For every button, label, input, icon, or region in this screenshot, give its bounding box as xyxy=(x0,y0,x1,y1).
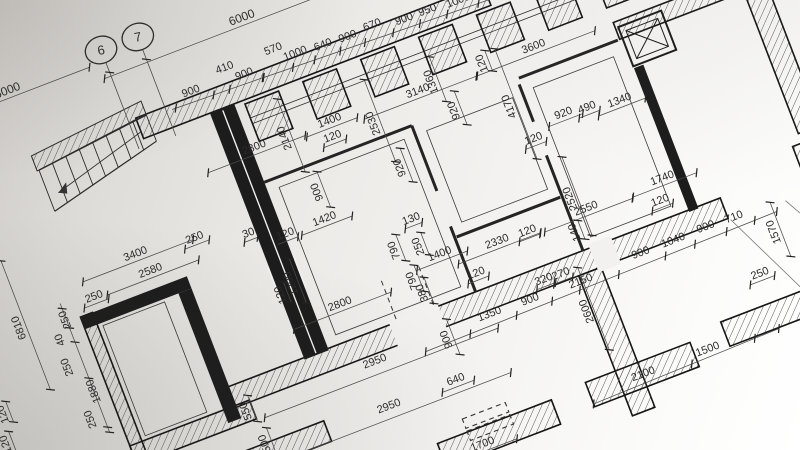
svg-text:2580: 2580 xyxy=(137,261,164,281)
dimension-label: 250 xyxy=(56,309,74,330)
svg-text:570: 570 xyxy=(262,40,283,58)
svg-text:120: 120 xyxy=(473,53,491,74)
dimension-label: 250 xyxy=(59,356,77,377)
dimension-label: 2950 xyxy=(375,396,402,416)
svg-text:250: 250 xyxy=(184,229,205,247)
svg-text:4170: 4170 xyxy=(499,93,519,120)
grid-bubble-label: 7 xyxy=(133,29,143,45)
svg-text:250: 250 xyxy=(83,288,104,306)
dimension-label: 900 xyxy=(304,168,335,213)
dimension-label: 250 xyxy=(178,227,212,254)
svg-text:250: 250 xyxy=(749,265,770,283)
svg-text:250: 250 xyxy=(82,408,100,429)
dimension-label: 120 xyxy=(646,190,676,215)
svg-text:490: 490 xyxy=(576,99,597,117)
svg-text:710: 710 xyxy=(723,208,744,226)
dimension-label: 640 xyxy=(436,367,478,397)
grid-bubble: 7 xyxy=(118,19,158,56)
dimension-label: 920 xyxy=(441,88,471,132)
dimension-label: 4170 xyxy=(482,45,542,165)
grid-bubble: 6 xyxy=(81,32,121,69)
dimension-label: 410 xyxy=(214,59,235,77)
dimension-label: 1500 xyxy=(694,339,721,359)
dimension-label: 250 xyxy=(82,408,100,429)
dimension-label: 120 xyxy=(519,129,549,154)
svg-text:920: 920 xyxy=(553,105,574,123)
dimension-label: 140 xyxy=(565,217,590,246)
svg-text:40: 40 xyxy=(52,332,68,348)
svg-text:140: 140 xyxy=(566,222,584,243)
svg-text:250: 250 xyxy=(410,236,428,257)
dimension-label: 1570 xyxy=(757,199,795,263)
svg-text:6000: 6000 xyxy=(227,6,257,29)
svg-text:250: 250 xyxy=(56,309,74,330)
svg-text:6000: 6000 xyxy=(0,79,23,102)
dimension-label: 120 xyxy=(0,428,21,450)
svg-text:120: 120 xyxy=(649,192,670,210)
dimension-label: 250 xyxy=(744,263,778,290)
svg-text:1880: 1880 xyxy=(84,378,104,405)
svg-text:250: 250 xyxy=(59,356,77,377)
svg-text:1420: 1420 xyxy=(311,209,338,229)
grid-bubble-label: 6 xyxy=(96,42,106,58)
svg-text:120: 120 xyxy=(517,222,538,240)
svg-text:1740: 1740 xyxy=(649,168,676,188)
svg-text:2950: 2950 xyxy=(375,396,402,416)
dimension-label: 2550 xyxy=(538,185,636,236)
dimension-label: 40 xyxy=(52,332,68,348)
dimension-label: 1420 xyxy=(295,203,355,240)
dimension-label: 1340 xyxy=(592,85,649,120)
dimension-label: 6000 xyxy=(0,53,93,133)
plan-group: 6760006000900410900570100064090067090095… xyxy=(0,0,800,450)
svg-text:120: 120 xyxy=(322,128,343,146)
dimension-label: 120 xyxy=(0,398,18,428)
svg-text:920: 920 xyxy=(391,157,409,178)
svg-text:1400: 1400 xyxy=(426,244,453,264)
dimension-label: 570 xyxy=(262,40,283,58)
dimension-label: 130 xyxy=(399,209,426,233)
svg-text:900: 900 xyxy=(308,181,326,202)
blueprint-photo: 6760006000900410900570100064090067090095… xyxy=(0,0,800,450)
svg-text:640: 640 xyxy=(445,371,466,389)
svg-text:120: 120 xyxy=(0,404,12,425)
floor-plan-drawing: 6760006000900410900570100064090067090095… xyxy=(0,0,800,450)
dimension-label: 3400 xyxy=(76,227,196,287)
svg-text:1570: 1570 xyxy=(764,218,784,245)
dimension-label: 1880 xyxy=(84,378,104,405)
svg-text:2800: 2800 xyxy=(326,294,353,314)
svg-text:120: 120 xyxy=(465,265,486,283)
svg-text:920: 920 xyxy=(445,100,463,121)
dimension-label: 790 xyxy=(383,231,410,267)
svg-text:790: 790 xyxy=(385,239,403,260)
svg-text:1340: 1340 xyxy=(606,91,633,111)
svg-text:410: 410 xyxy=(214,59,235,77)
svg-text:3400: 3400 xyxy=(122,244,149,264)
svg-text:1500: 1500 xyxy=(694,339,721,359)
svg-text:130: 130 xyxy=(401,210,422,228)
svg-text:2530: 2530 xyxy=(363,110,383,137)
svg-text:2520: 2520 xyxy=(561,185,581,212)
svg-text:2330: 2330 xyxy=(484,232,511,252)
dimension-label: 710 xyxy=(723,208,744,226)
dimension-label: 6810 xyxy=(0,258,55,397)
svg-text:6810: 6810 xyxy=(9,314,29,341)
